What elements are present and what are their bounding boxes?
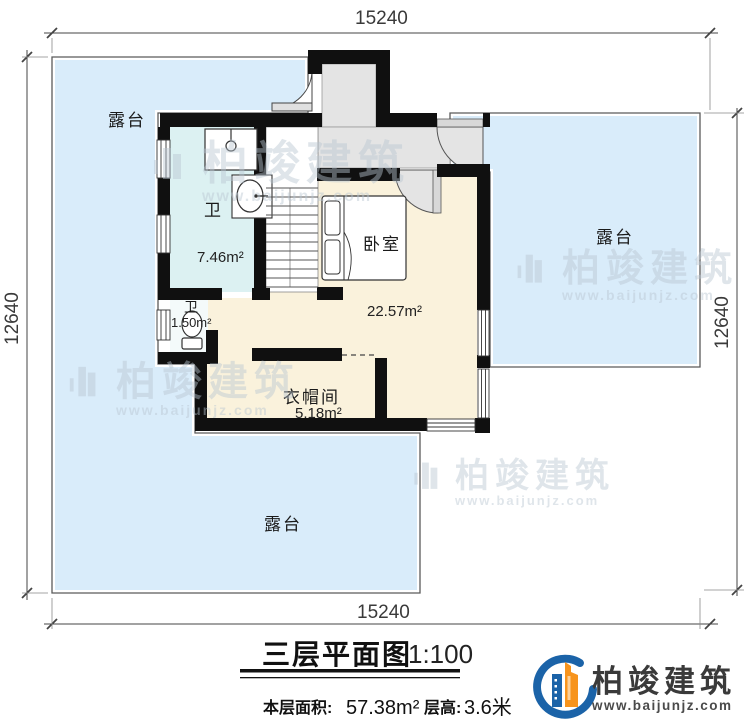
bedroom-label: 卧室 <box>363 235 401 254</box>
floor-height-value: 3.6米 <box>464 696 512 719</box>
watermark-brand: 柏竣建筑 <box>455 456 615 495</box>
floor-plan-page: 露台 露台 露台 卫 7.46m² 卫 1.50m² 卧室 22.57m² 衣帽… <box>0 0 750 725</box>
watermark-url: www.baijunjz.com <box>454 493 599 508</box>
bedroom-area: 22.57m² <box>367 303 422 320</box>
window-bath-lower <box>157 215 170 253</box>
floor-plan-drawing: 露台 露台 露台 卫 7.46m² 卫 1.50m² 卧室 22.57m² 衣帽… <box>0 0 750 725</box>
watermark-url: www.baijunjz.com <box>561 287 715 303</box>
terrace-top-left-label: 露台 <box>108 111 146 130</box>
watermark-url: www.baijunjz.com <box>201 188 372 205</box>
floor-area-label: 本层面积: <box>263 698 332 717</box>
title-underline-thin <box>240 677 460 678</box>
company-logo: 柏竣建筑 www.baijunjz.com <box>537 659 736 715</box>
company-logo-icon <box>537 659 593 715</box>
plan-title: 三层平面图 <box>262 639 412 670</box>
bath-small-area: 1.50m² <box>171 315 212 330</box>
floor-height-label: 层高: <box>424 698 461 717</box>
company-logo-url: www.baijunjz.com <box>591 698 733 713</box>
floor-area-value: 57.38m² <box>346 697 420 719</box>
dimension-top: 15240 <box>355 8 408 29</box>
watermark-brand: 柏竣建筑 <box>562 248 738 290</box>
window-bedroom-east-lower <box>478 369 489 418</box>
terrace-right-label: 露台 <box>596 228 634 247</box>
dimension-left: 12640 <box>2 292 23 345</box>
watermark-url: www.baijunjz.com <box>115 402 269 418</box>
watermark-brand: 柏竣建筑 <box>202 137 410 189</box>
bath-main-area: 7.46m² <box>197 249 244 266</box>
bath-small-label: 卫 <box>184 299 199 315</box>
watermark: 柏竣建筑 www.baijunjz.com <box>407 456 615 508</box>
dimension-bottom: 15240 <box>357 602 410 623</box>
cloakroom-area: 5.18m² <box>295 405 342 422</box>
title-block: 三层平面图 1:100 本层面积: 57.38m² 层高: 3.6米 <box>240 639 512 719</box>
title-underline-thick <box>240 669 460 673</box>
dimension-right: 12640 <box>712 296 733 349</box>
company-logo-brand: 柏竣建筑 <box>592 664 736 699</box>
window-bedroom-east-upper <box>478 310 489 356</box>
window-bedroom-south <box>427 419 475 431</box>
terrace-bottom-label: 露台 <box>264 515 302 534</box>
plan-scale: 1:100 <box>408 639 473 669</box>
window-bath-small <box>157 310 170 340</box>
watermark-brand: 柏竣建筑 <box>116 360 300 404</box>
